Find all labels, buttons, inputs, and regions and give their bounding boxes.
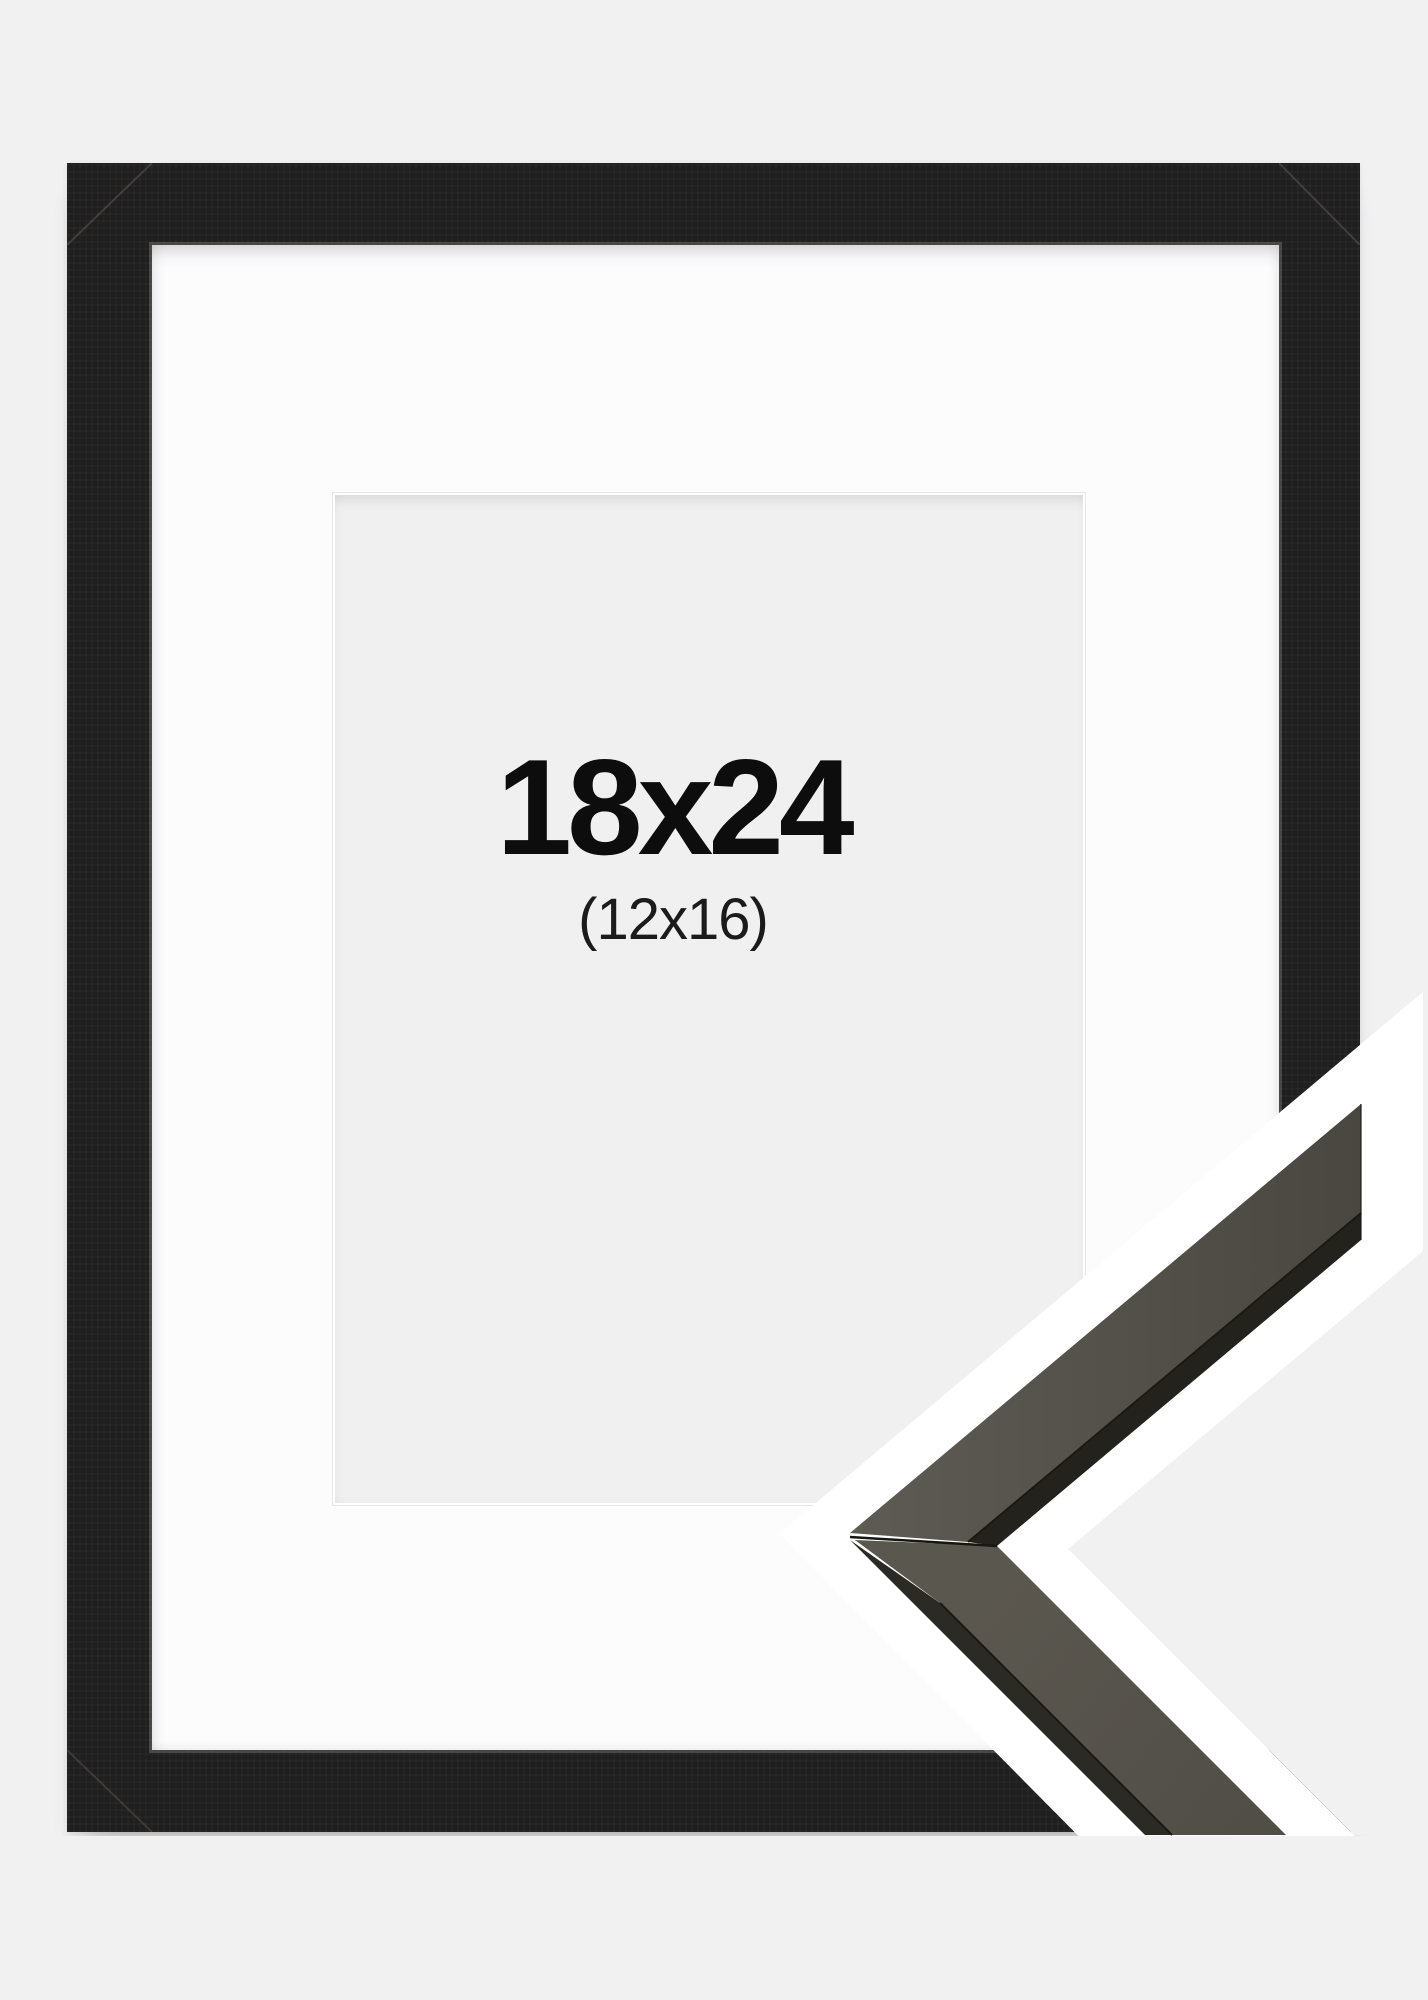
picture-frame: 18x24 (12x16): [67, 163, 1360, 1832]
photo-bottom-crop: [0, 1836, 1428, 2000]
product-photo: 18x24 (12x16): [0, 0, 1428, 2000]
inner-size-label: (12x16): [297, 891, 1049, 949]
frame-miter-joint-bottom-left: [67, 1750, 152, 1832]
size-label: 18x24: [297, 739, 1049, 875]
frame-miter-joint-top-left: [67, 163, 152, 245]
frame-miter-joint-top-right: [1279, 163, 1360, 245]
frame-miter-joint-bottom-right: [1279, 1750, 1360, 1832]
mat-opening: 18x24 (12x16): [332, 492, 1086, 1506]
mat-board: 18x24 (12x16): [152, 245, 1279, 1750]
